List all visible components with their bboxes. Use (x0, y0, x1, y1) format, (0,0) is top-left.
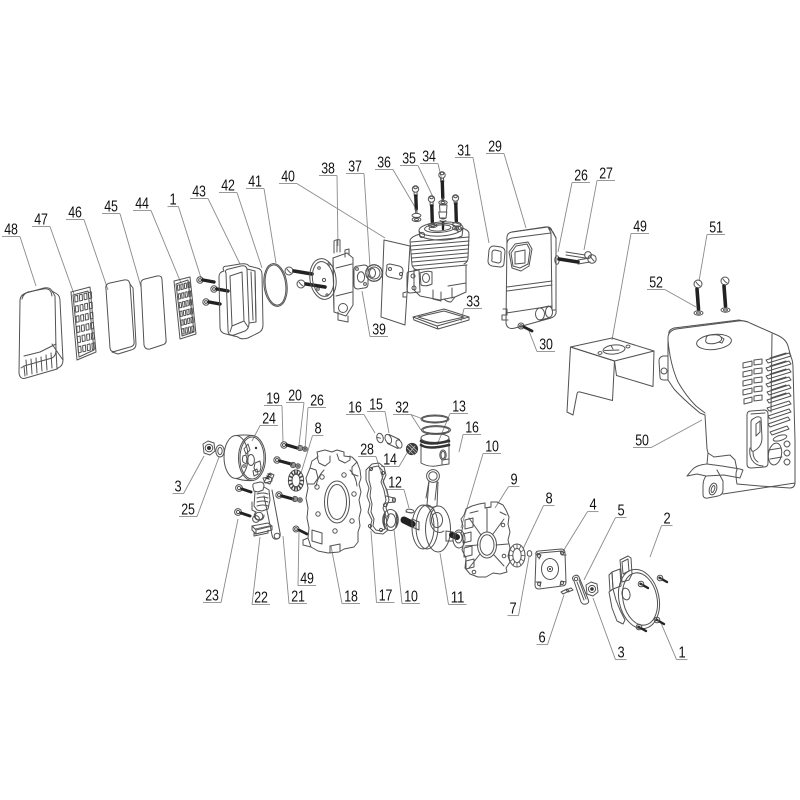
svg-text:18: 18 (344, 589, 358, 606)
svg-text:26: 26 (310, 393, 324, 410)
svg-text:37: 37 (348, 159, 362, 176)
svg-text:19: 19 (266, 391, 280, 408)
svg-text:23: 23 (205, 588, 219, 605)
svg-text:2: 2 (664, 511, 671, 528)
svg-text:48: 48 (4, 222, 18, 239)
svg-text:16: 16 (348, 400, 362, 417)
svg-text:47: 47 (34, 212, 48, 229)
svg-text:11: 11 (451, 590, 465, 607)
svg-text:10: 10 (485, 439, 499, 456)
svg-text:35: 35 (402, 151, 416, 168)
svg-text:1: 1 (170, 192, 177, 209)
svg-text:7: 7 (510, 601, 517, 618)
svg-text:28: 28 (360, 442, 374, 459)
svg-text:49: 49 (633, 219, 647, 236)
svg-text:32: 32 (395, 400, 409, 417)
svg-text:14: 14 (383, 452, 397, 469)
svg-text:5: 5 (618, 503, 625, 520)
svg-text:17: 17 (379, 588, 393, 605)
svg-text:31: 31 (457, 143, 471, 160)
svg-text:49: 49 (300, 571, 314, 588)
svg-text:20: 20 (288, 388, 302, 405)
svg-text:16: 16 (465, 420, 479, 437)
svg-text:6: 6 (539, 630, 546, 647)
svg-text:29: 29 (488, 139, 502, 156)
svg-text:22: 22 (254, 590, 268, 607)
svg-text:13: 13 (452, 399, 466, 416)
svg-text:15: 15 (369, 397, 383, 414)
svg-text:51: 51 (709, 220, 723, 237)
svg-text:8: 8 (546, 491, 553, 508)
svg-text:24: 24 (262, 411, 276, 428)
svg-text:50: 50 (635, 433, 649, 450)
svg-text:27: 27 (599, 166, 613, 183)
svg-text:36: 36 (377, 155, 391, 172)
svg-text:26: 26 (574, 168, 588, 185)
svg-text:34: 34 (422, 149, 436, 166)
svg-text:21: 21 (291, 589, 305, 606)
svg-text:33: 33 (466, 294, 480, 311)
svg-text:3: 3 (175, 479, 182, 496)
svg-text:1: 1 (679, 645, 686, 662)
svg-text:42: 42 (221, 178, 235, 195)
svg-text:43: 43 (192, 184, 206, 201)
svg-text:3: 3 (618, 645, 625, 662)
svg-text:30: 30 (539, 337, 553, 354)
svg-text:39: 39 (372, 322, 386, 339)
svg-text:41: 41 (248, 174, 262, 191)
svg-text:12: 12 (388, 475, 402, 492)
svg-text:9: 9 (511, 472, 518, 489)
svg-text:4: 4 (590, 497, 597, 514)
svg-text:25: 25 (181, 502, 195, 519)
svg-text:45: 45 (104, 199, 118, 216)
svg-text:8: 8 (315, 421, 322, 438)
svg-text:52: 52 (649, 275, 663, 292)
svg-text:38: 38 (321, 161, 335, 178)
svg-text:44: 44 (135, 196, 149, 213)
svg-text:46: 46 (68, 205, 82, 222)
svg-text:10: 10 (404, 589, 418, 606)
svg-text:40: 40 (281, 169, 295, 186)
